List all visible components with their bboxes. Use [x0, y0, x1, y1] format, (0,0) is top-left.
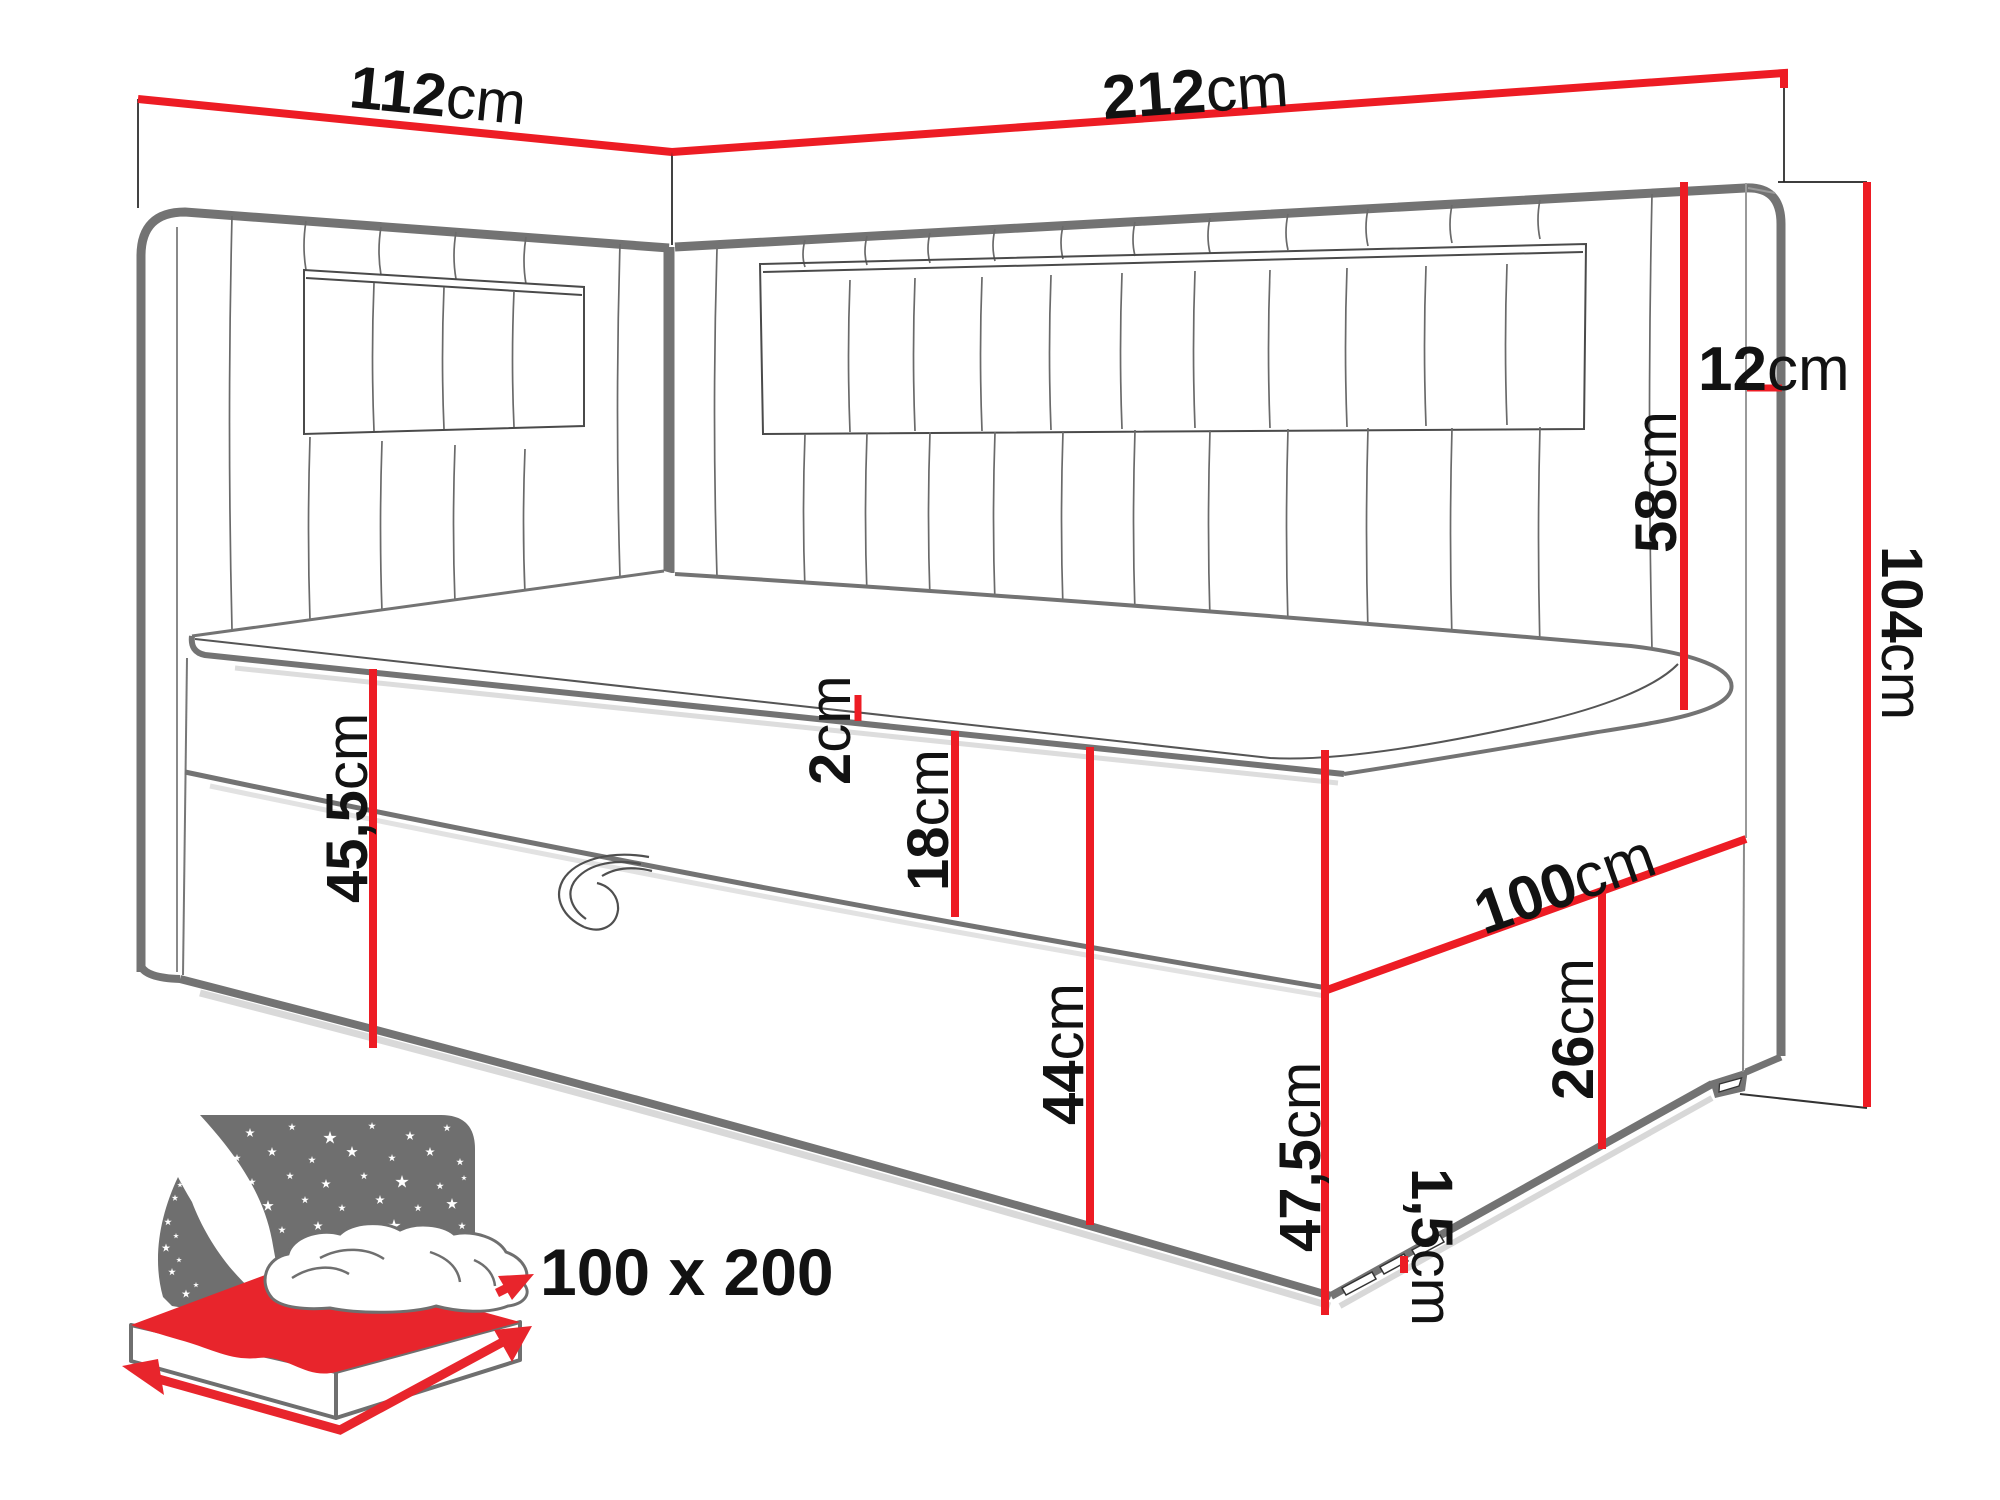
svg-text:44cm: 44cm	[1031, 983, 1096, 1125]
svg-text:58cm: 58cm	[1624, 411, 1689, 553]
svg-text:104cm: 104cm	[1869, 546, 1934, 720]
svg-text:100 x 200: 100 x 200	[540, 1235, 834, 1309]
svg-text:1,5cm: 1,5cm	[1399, 1168, 1464, 1326]
svg-text:18cm: 18cm	[896, 749, 961, 891]
svg-text:45,5cm: 45,5cm	[315, 713, 380, 903]
svg-text:26cm: 26cm	[1541, 958, 1606, 1100]
svg-text:2cm: 2cm	[798, 675, 863, 785]
svg-text:47,5cm: 47,5cm	[1268, 1062, 1333, 1252]
svg-text:212cm: 212cm	[1100, 51, 1291, 133]
svg-text:12cm: 12cm	[1698, 335, 1850, 404]
